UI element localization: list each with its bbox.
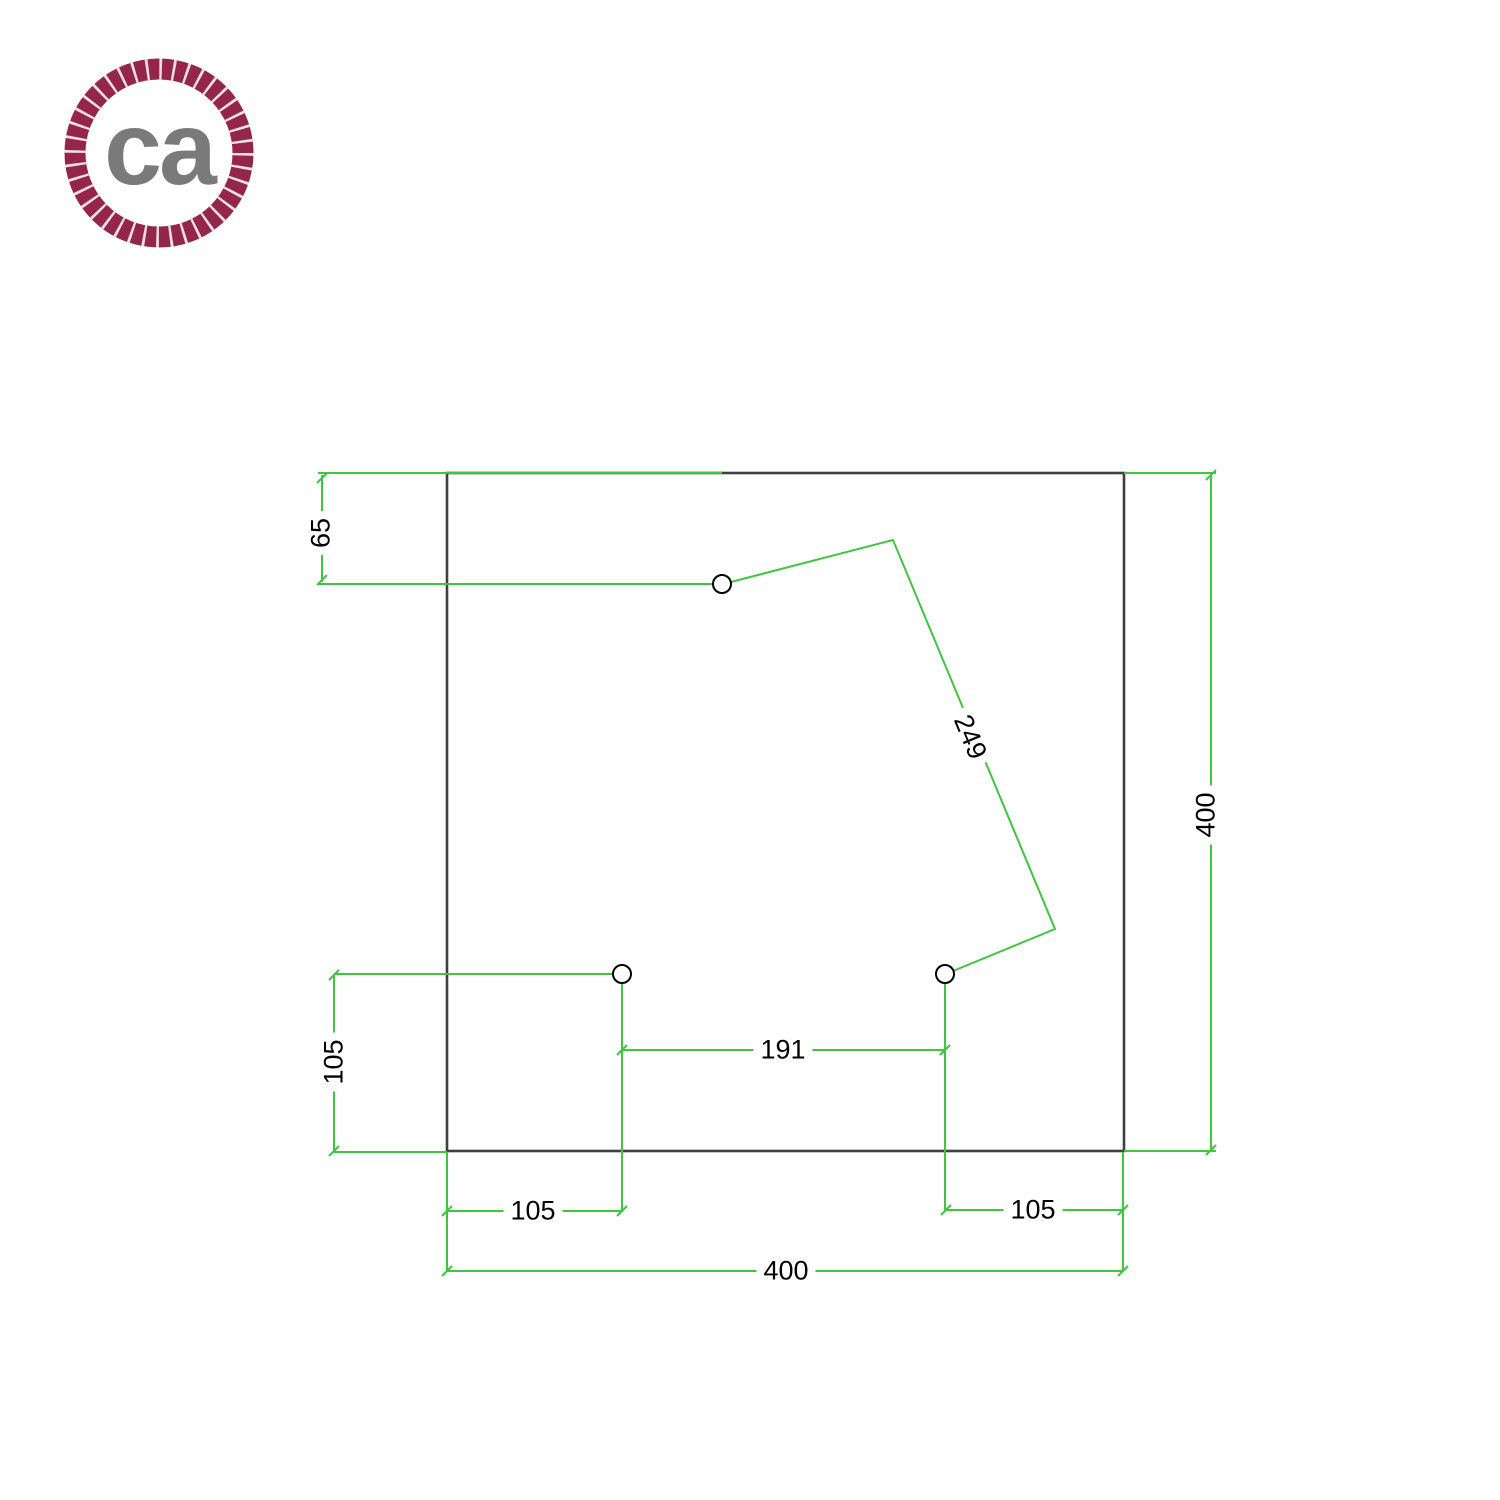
dim-label-bottom-right: 105	[1003, 1196, 1062, 1225]
dim-label-right-side: 400	[1192, 785, 1221, 844]
diagram-canvas: ca	[0, 0, 1500, 1500]
hole-bottom-left	[613, 965, 631, 983]
dim-label-bottom-left: 105	[503, 1197, 562, 1226]
dim-105-left-lines	[329, 970, 613, 1156]
drill-holes	[613, 575, 954, 983]
dim-label-left-offset: 105	[320, 1032, 349, 1091]
dim-label-bottom-width: 400	[756, 1257, 815, 1286]
dim-249-lines	[731, 540, 1055, 971]
dim-65-lines	[317, 473, 722, 585]
hole-extension-lines	[447, 983, 1123, 1271]
technical-drawing	[0, 0, 1500, 1500]
hole-top	[713, 575, 731, 593]
dim-label-top-offset: 65	[307, 511, 336, 555]
hole-bottom-right	[936, 965, 954, 983]
dim-label-hole-spacing: 191	[753, 1036, 812, 1065]
